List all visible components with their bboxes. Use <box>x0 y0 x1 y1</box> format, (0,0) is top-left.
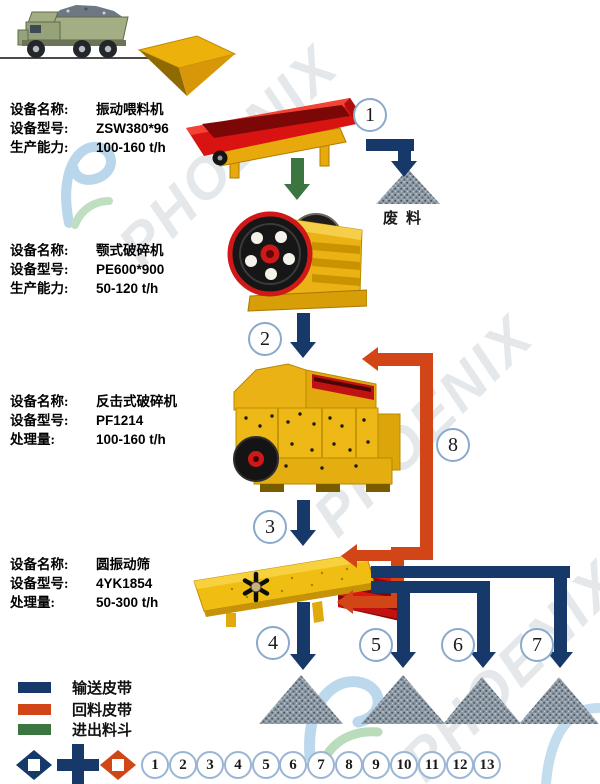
field-value: 50-300 t/h <box>96 593 158 612</box>
conveyor-line-4 <box>297 602 310 654</box>
return-arrowhead <box>337 590 353 614</box>
number-circle-9: 9 <box>362 751 390 779</box>
equipment-label-impact-crusher: 设备名称:反击式破碎机 设备型号:PF1214 处理量:100-160 t/h <box>10 392 177 449</box>
conveyor-line-2 <box>297 313 310 342</box>
number-circle-13: 13 <box>473 751 501 779</box>
feed-arrowhead <box>284 184 310 200</box>
flow-diagram-page: PHOENIX PHOENIX PHOENIX <box>0 0 600 784</box>
field-label: 设备名称: <box>10 241 96 260</box>
field-label: 设备型号: <box>10 574 96 593</box>
field-label: 设备名称: <box>10 555 96 574</box>
stockpile-icon <box>361 675 445 724</box>
number-circle-8: 8 <box>335 751 363 779</box>
conveyor-arrowhead <box>290 530 316 546</box>
flow-step-badge-3: 3 <box>253 510 287 544</box>
field-value: PF1214 <box>96 411 143 430</box>
legend-row-hopper: 进出料斗 <box>18 722 132 737</box>
diamond-navy-icon <box>16 750 52 780</box>
field-label: 设备型号: <box>10 119 96 138</box>
field-label: 生产能力: <box>10 138 96 157</box>
feed-hopper-icon <box>137 34 237 98</box>
legend-swatch-hopper <box>18 724 51 735</box>
conveyor-arrowhead <box>290 654 316 670</box>
field-value: 4YK1854 <box>96 574 152 593</box>
number-circle-5: 5 <box>252 751 280 779</box>
conveyor-line-6 <box>371 581 490 593</box>
conveyor-arrowhead <box>290 342 316 358</box>
conveyor-line-5 <box>397 586 410 652</box>
number-circle-3: 3 <box>196 751 224 779</box>
number-circle-6: 6 <box>279 751 307 779</box>
flow-step-badge-5: 5 <box>359 628 393 662</box>
conveyor-arrowhead <box>470 652 496 668</box>
conveyor-line-7 <box>371 566 570 578</box>
field-label: 生产能力: <box>10 279 96 298</box>
field-value: PE600*900 <box>96 260 164 279</box>
flow-step-badge-7: 7 <box>520 628 554 662</box>
conveyor-line-6 <box>477 581 490 652</box>
field-value: 50-120 t/h <box>96 279 158 298</box>
field-value: 100-160 t/h <box>96 430 166 449</box>
number-circle-7: 7 <box>307 751 335 779</box>
conveyor-arrowhead <box>390 652 416 668</box>
plus-navy-icon <box>57 744 99 784</box>
stockpile-icon <box>519 677 599 724</box>
field-value: 圆振动筛 <box>96 555 150 574</box>
stockpile-icon <box>443 677 521 724</box>
return-arrowhead <box>362 347 378 371</box>
equipment-label-vibrating-screen: 设备名称:圆振动筛 设备型号:4YK1854 处理量:50-300 t/h <box>10 555 158 612</box>
conveyor-line-7 <box>554 566 567 652</box>
conveyor-line-3 <box>297 500 310 530</box>
flow-step-badge-8: 8 <box>436 428 470 462</box>
diamond-orange-icon <box>100 750 136 780</box>
legend-row-conveyor: 输送皮带 <box>18 680 132 695</box>
legend-label: 输送皮带 <box>72 677 132 698</box>
number-circle-12: 12 <box>446 751 474 779</box>
legend-label: 进出料斗 <box>72 719 132 740</box>
return-line <box>356 550 392 561</box>
number-circle-2: 2 <box>169 751 197 779</box>
legend-label: 回料皮带 <box>72 699 132 720</box>
equipment-label-jaw-crusher: 设备名称:颚式破碎机 设备型号:PE600*900 生产能力:50-120 t/… <box>10 241 164 298</box>
number-circle-1: 1 <box>141 751 169 779</box>
impact-crusher-illustration <box>226 356 404 494</box>
field-label: 设备名称: <box>10 100 96 119</box>
field-label: 处理量: <box>10 430 96 449</box>
vibrating-feeder-illustration <box>182 92 370 184</box>
field-value: 反击式破碎机 <box>96 392 177 411</box>
return-arrowhead <box>341 544 357 568</box>
field-value: 100-160 t/h <box>96 138 166 157</box>
equipment-label-feeder: 设备名称:振动喂料机 设备型号:ZSW380*96 生产能力:100-160 t… <box>10 100 169 157</box>
flow-step-badge-6: 6 <box>441 628 475 662</box>
field-label: 设备名称: <box>10 392 96 411</box>
field-value: 颚式破碎机 <box>96 241 164 260</box>
stockpile-icon <box>259 675 343 724</box>
conveyor-line-1 <box>398 139 411 161</box>
dump-truck-illustration <box>6 3 138 59</box>
flow-step-badge-1: 1 <box>353 98 387 132</box>
return-line <box>420 353 433 560</box>
field-label: 处理量: <box>10 593 96 612</box>
number-circle-11: 11 <box>418 751 446 779</box>
field-value: 振动喂料机 <box>96 100 164 119</box>
flow-step-badge-4: 4 <box>256 626 290 660</box>
legend-row-return-belt: 回料皮带 <box>18 702 132 717</box>
field-value: ZSW380*96 <box>96 119 169 138</box>
number-circle-10: 10 <box>390 751 418 779</box>
feed-arrow-line <box>291 158 304 184</box>
number-circle-4: 4 <box>224 751 252 779</box>
conveyor-arrowhead <box>391 161 417 177</box>
field-label: 设备型号: <box>10 411 96 430</box>
flow-step-badge-2: 2 <box>248 322 282 356</box>
waste-pile-label: 废料 <box>383 207 429 228</box>
legend-swatch-conveyor <box>18 682 51 693</box>
field-label: 设备型号: <box>10 260 96 279</box>
legend-swatch-return-belt <box>18 704 51 715</box>
jaw-crusher-illustration <box>212 190 367 314</box>
